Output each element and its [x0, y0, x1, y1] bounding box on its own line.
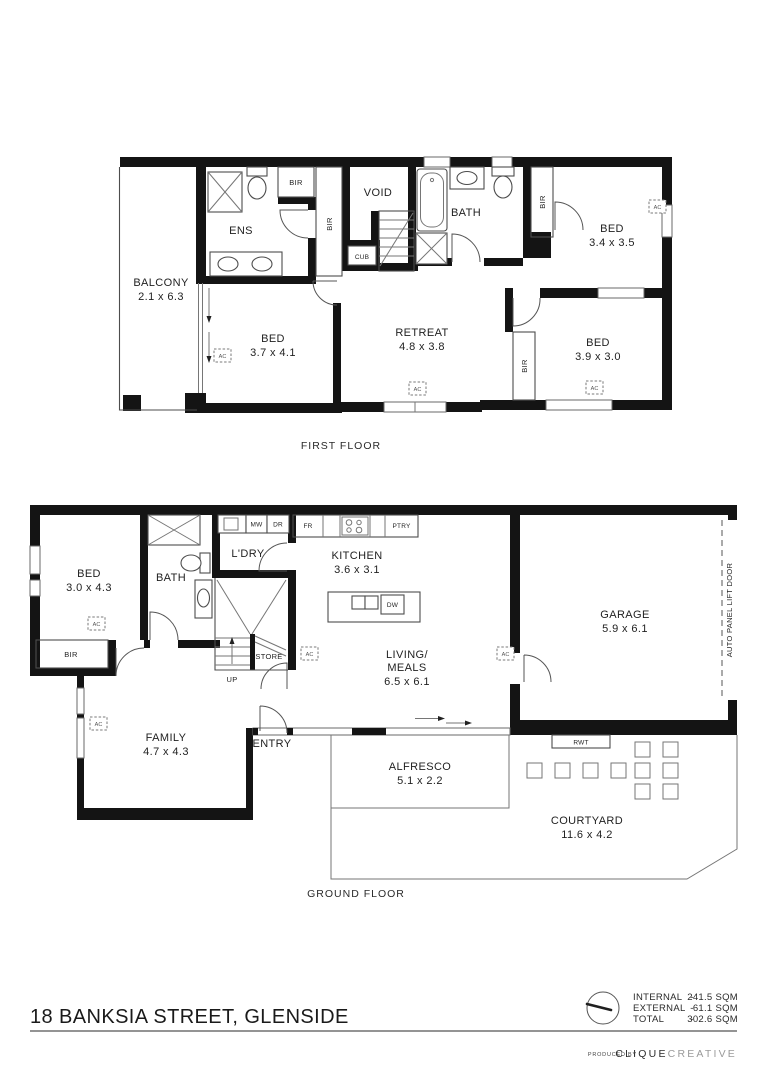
up-label: UP [226, 675, 237, 684]
ens-toilet [247, 167, 267, 199]
room-label-alfresco: ALFRESCO [389, 761, 452, 773]
bed-bir-closet: BIR [36, 640, 108, 668]
bir-label: BIR [64, 650, 78, 659]
ens-vanity [210, 252, 282, 276]
bir-label: BIR [325, 217, 334, 231]
ground-floor-ac-markers: AC AC AC AC [88, 617, 514, 730]
dw-label: DW [387, 602, 399, 609]
laundry-sink [218, 515, 246, 533]
bath-vanity [450, 167, 484, 189]
compass-icon [587, 992, 619, 1024]
ac-marker: AC [649, 200, 666, 213]
room-label-entry: ENTRY [252, 738, 291, 750]
room-label-void: VOID [364, 187, 393, 199]
room-dims-alfresco: 5.1 x 2.2 [397, 775, 443, 787]
pantry-label: PTRY [392, 523, 410, 530]
room-label-bed2: BED [600, 223, 624, 235]
ac-label: AC [654, 205, 662, 211]
mw-label: MW [251, 522, 264, 529]
ac-label: AC [93, 622, 101, 628]
bath-shower [416, 233, 447, 264]
brand-logo: CLIQUECREATIVE [615, 1048, 737, 1060]
bir-corridor: BIR [316, 167, 342, 276]
area-value-total: 302.6 SQM [687, 1014, 738, 1025]
store-label: STORE [255, 652, 282, 661]
ac-marker: AC [214, 349, 231, 362]
garage-door-label: AUTO PANEL LIFT DOOR [725, 562, 734, 657]
ac-label: AC [306, 652, 314, 658]
dryer-box: DR [267, 515, 289, 533]
area-value-external: 61.1 SQM [693, 1003, 738, 1014]
floor-plan-page: BIR BIR CUB [0, 0, 764, 1080]
bathtub [417, 169, 447, 231]
rwt-label: RWT [573, 740, 588, 747]
room-dims-bed: 3.0 x 4.3 [66, 582, 112, 594]
bir-label: BIR [538, 195, 547, 209]
ground-floor-plan: BIR MW DR [30, 505, 737, 900]
brand-creative: CREATIVE [668, 1048, 737, 1060]
ac-marker: AC [90, 717, 107, 730]
wc-toilet [492, 167, 514, 198]
producer-credit: PRODUCED BY CLIQUECREATIVE [588, 1048, 737, 1060]
first-floor-title: FIRST FLOOR [301, 440, 381, 452]
microwave-box: MW [246, 515, 267, 533]
room-dims-bed2: 3.4 x 3.5 [589, 237, 635, 249]
bed2-robe: BIR [531, 167, 553, 237]
room-dims-retreat: 4.8 x 3.8 [399, 341, 445, 353]
ac-label: AC [219, 354, 227, 360]
cub-label: CUB [355, 254, 369, 261]
garage-door: AUTO PANEL LIFT DOOR [722, 520, 734, 700]
dishwasher-box: DW [381, 595, 404, 614]
room-dims-bed3: 3.9 x 3.0 [575, 351, 621, 363]
area-label-external: EXTERNAL [633, 1003, 686, 1014]
floor-plan-canvas: BIR BIR CUB [0, 0, 764, 1080]
kitchen-bench: FR PTRY [293, 515, 418, 537]
address-title: 18 BANKSIA STREET, GLENSIDE [30, 1006, 349, 1028]
ground-floor-walls [30, 505, 737, 820]
room-label-garage: GARAGE [600, 609, 649, 621]
room-label-ldry: L'DRY [231, 548, 265, 560]
room-dims-bed1: 3.7 x 4.1 [250, 347, 296, 359]
room-dims-garage: 5.9 x 6.1 [602, 623, 648, 635]
area-summary: INTERNAL - 241.5 SQM EXTERNAL - 61.1 SQM… [633, 992, 738, 1025]
room-label-bed3: BED [586, 337, 610, 349]
ac-marker: AC [301, 647, 318, 660]
room-label-bed: BED [77, 568, 101, 580]
room-dims-kitchen: 3.6 x 3.1 [334, 564, 380, 576]
balcony-sliding-door [199, 283, 212, 393]
room-dims-living: 6.5 x 6.1 [384, 676, 430, 688]
ground-floor-title: GROUND FLOOR [307, 888, 405, 900]
ac-marker: AC [88, 617, 105, 630]
room-dims-courtyard: 11.6 x 4.2 [561, 829, 613, 841]
room-label-bath: BATH [451, 207, 481, 219]
room-label-bath: BATH [156, 572, 186, 584]
room-label-family: FAMILY [146, 732, 187, 744]
rainwater-tank: RWT [552, 735, 610, 748]
ac-label: AC [502, 652, 510, 658]
area-label-total: TOTAL [633, 1014, 664, 1025]
cub-cupboard: CUB [348, 246, 376, 265]
room-label-kitchen: KITCHEN [331, 550, 382, 562]
room-label-retreat: RETREAT [395, 327, 448, 339]
ens-shower [208, 172, 242, 212]
room-label-ens: ENS [229, 225, 253, 237]
bir-closet-top: BIR [278, 167, 314, 197]
ac-label: AC [95, 722, 103, 728]
room-label-courtyard: COURTYARD [551, 815, 623, 827]
bir-label: BIR [520, 359, 529, 373]
bed3-robe: BIR [513, 332, 535, 400]
fridge-label: FR [303, 523, 312, 530]
first-floor-plan: BIR BIR CUB [120, 157, 673, 452]
brand-clique: CLIQUE [615, 1048, 667, 1060]
room-dims-balcony: 2.1 x 6.3 [138, 291, 184, 303]
ac-label: AC [414, 387, 422, 393]
ac-marker: AC [409, 382, 426, 395]
footer: 18 BANKSIA STREET, GLENSIDE INTERNAL - 2… [30, 992, 738, 1060]
dr-label: DR [273, 522, 283, 529]
ac-label: AC [591, 386, 599, 392]
kitchen-island: DW [328, 592, 420, 622]
alfresco-slider-arrows [415, 716, 472, 726]
ground-bath-toilet [181, 553, 210, 573]
room-dims-family: 4.7 x 4.3 [143, 746, 189, 758]
ac-marker: AC [586, 381, 603, 394]
ground-bath-vanity [195, 580, 212, 618]
ground-bath-shower [148, 515, 200, 545]
room-label-living2: MEALS [387, 662, 426, 674]
ac-marker: AC [497, 647, 514, 660]
area-value-internal: 241.5 SQM [687, 992, 738, 1003]
courtyard-pavers [527, 742, 678, 799]
room-label-balcony: BALCONY [133, 277, 189, 289]
bir-label: BIR [289, 178, 303, 187]
room-label-bed1: BED [261, 333, 285, 345]
room-label-living1: LIVING/ [386, 649, 428, 661]
area-label-internal: INTERNAL [633, 992, 682, 1003]
cooktop [342, 517, 368, 535]
